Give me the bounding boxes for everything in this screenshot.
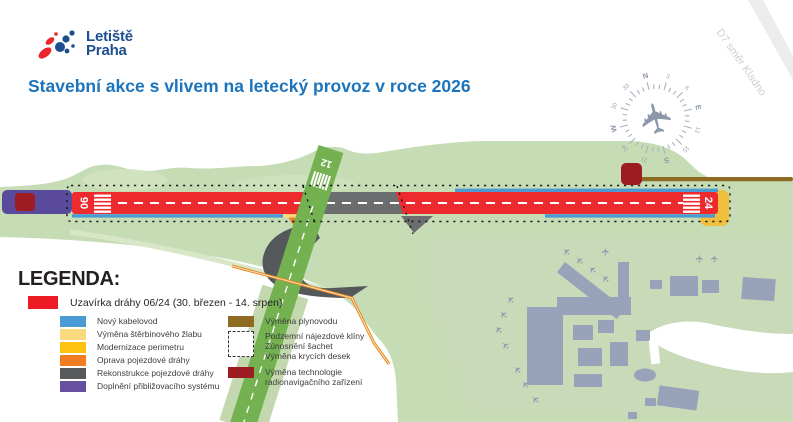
airplane-icon: ✈: [695, 255, 706, 263]
gas-pipeline-line: [640, 177, 793, 181]
zlab-swatch: [60, 329, 86, 340]
d7-road-label: D7 směr Kladno: [714, 27, 769, 98]
legend-column-2: Výměna plynovodu Podzemní nájezdové klín…: [228, 316, 364, 394]
runway-number-06: 06: [79, 197, 91, 209]
dashed-works-swatch: [228, 331, 254, 357]
cable-duct-bottom-right: [545, 214, 715, 217]
svg-text:15: 15: [681, 144, 690, 153]
legend-main-item: Uzavírka dráhy 06/24 (30. březen - 14. s…: [18, 296, 418, 309]
legend: LEGENDA: Uzavírka dráhy 06/24 (30. březe…: [18, 268, 418, 394]
kabelovod-swatch: [60, 316, 86, 327]
cable-duct-top-right: [455, 189, 718, 192]
logo-icon: [36, 24, 80, 64]
legend-item: Nový kabelovod: [60, 316, 228, 327]
legend-item: Doplnění přibližovacího systému: [60, 381, 228, 392]
airplane-icon: ✈: [710, 255, 721, 263]
radionav-label: Výměna technologie radionavigačního zaří…: [265, 367, 362, 387]
compass-airplane-icon: ✈: [628, 95, 684, 141]
legend-item: Modernizace perimetru: [60, 342, 228, 353]
apron-patch: [235, 175, 355, 193]
perimetr-swatch: [60, 342, 86, 353]
radionav-swatch: [228, 367, 254, 378]
legend-item: Výměna štěrbinového žlabu: [60, 329, 228, 340]
rekonstrukce-swatch: [60, 368, 86, 379]
svg-text:33: 33: [622, 83, 631, 92]
svg-text:3: 3: [665, 74, 670, 81]
legend-item: Výměna plynovodu: [228, 316, 364, 327]
svg-text:N: N: [642, 71, 649, 81]
oprava-swatch: [60, 355, 86, 366]
closure-swatch: [28, 296, 58, 309]
priblizovaci-swatch: [60, 381, 86, 392]
legend-item: Oprava pojezdové dráhy: [60, 355, 228, 366]
page-title: Stavební akce s vlivem na letecký provoz…: [28, 76, 471, 97]
svg-text:6: 6: [683, 85, 690, 92]
d7-road: [748, 0, 793, 80]
closure-label: Uzavírka dráhy 06/24 (30. březen - 14. s…: [70, 297, 282, 309]
svg-text:W: W: [608, 123, 619, 133]
svg-text:E: E: [693, 104, 703, 111]
logo: Letiště Praha: [36, 24, 133, 64]
legend-item: Rekonstrukce pojezdové dráhy: [60, 368, 228, 379]
radionav-block-left: [15, 193, 35, 211]
svg-text:30: 30: [611, 102, 619, 111]
radionav-block-right: [621, 163, 642, 185]
logo-text: Letiště Praha: [86, 30, 133, 59]
infographic-page: D7 směr Kladno: [0, 0, 793, 422]
legend-column-1: Nový kabelovod Výměna štěrbinového žlabu…: [60, 316, 228, 394]
logo-line2: Praha: [86, 44, 133, 58]
approach-system-block: [2, 190, 72, 214]
legend-item: Výměna technologie radionavigačního zaří…: [228, 367, 364, 387]
airplane-icon: ✈: [601, 248, 612, 256]
legend-item: Podzemní nájezdové klíny Zúnosnění šache…: [228, 331, 364, 362]
legend-header: LEGENDA:: [18, 268, 418, 291]
dashed-works-label: Podzemní nájezdové klíny Zúnosnění šache…: [265, 331, 364, 362]
plynovod-swatch: [228, 316, 254, 327]
svg-text:12: 12: [693, 126, 701, 135]
runway-number-24: 24: [702, 197, 714, 210]
apron-patch: [83, 169, 167, 191]
cable-duct-left: [72, 214, 283, 217]
